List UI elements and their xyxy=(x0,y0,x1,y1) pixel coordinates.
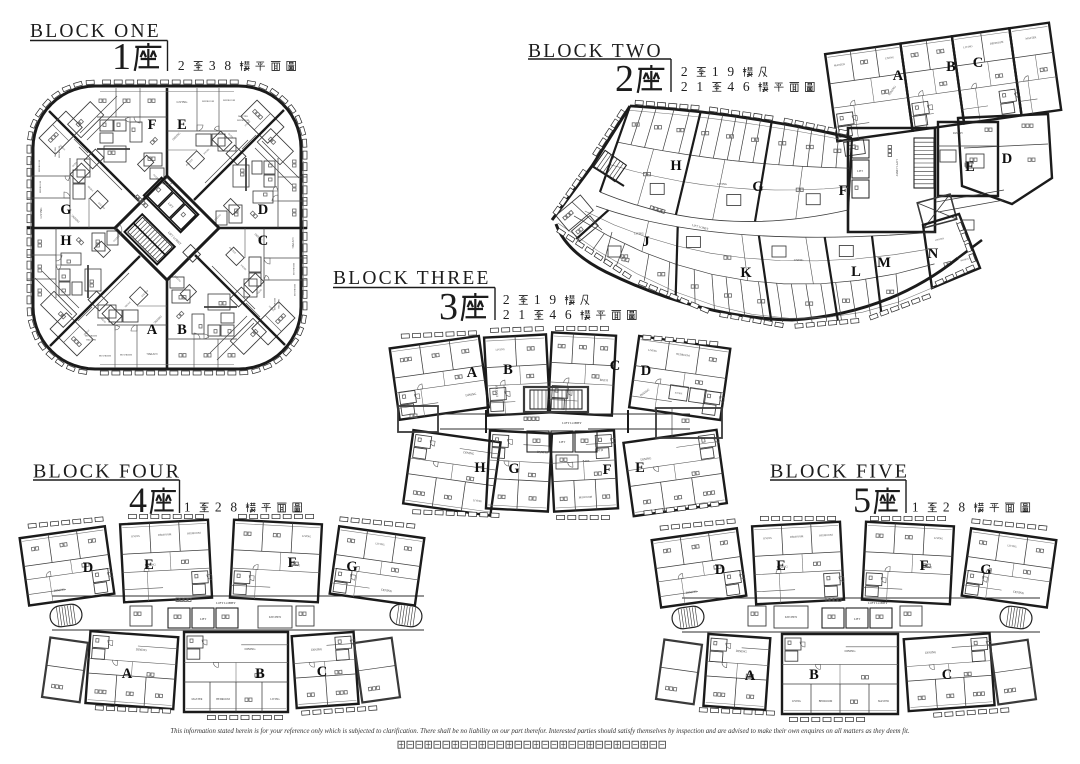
svg-text:BLOCK FOUR: BLOCK FOUR xyxy=(33,461,181,483)
svg-text:MASTER: MASTER xyxy=(86,338,96,341)
svg-text:BEDROOM: BEDROOM xyxy=(119,353,132,356)
svg-text:PANTRY: PANTRY xyxy=(495,384,500,397)
svg-text:A: A xyxy=(893,68,904,84)
svg-text:3: 3 xyxy=(439,286,458,328)
svg-text:BEDROOM: BEDROOM xyxy=(216,698,230,701)
svg-text:LIFT LOBBY: LIFT LOBBY xyxy=(562,421,582,425)
svg-text:BEDROOM: BEDROOM xyxy=(202,100,215,103)
svg-text:BATH: BATH xyxy=(583,460,590,463)
svg-text:G: G xyxy=(60,202,71,218)
svg-text:BEDROOM: BEDROOM xyxy=(293,284,296,297)
svg-text:BEDROOM: BEDROOM xyxy=(819,700,833,703)
svg-text:LIVING: LIVING xyxy=(1007,544,1017,548)
svg-text:LIVING: LIVING xyxy=(717,183,727,186)
svg-text:LIVING: LIVING xyxy=(131,535,140,538)
svg-text:4: 4 xyxy=(129,480,147,520)
svg-text:D: D xyxy=(641,363,651,379)
svg-text:B: B xyxy=(177,322,187,338)
svg-text:8: 8 xyxy=(224,58,231,73)
svg-text:LIFT: LIFT xyxy=(167,202,174,209)
svg-text:MASTER: MASTER xyxy=(238,115,248,118)
svg-text:MASTER: MASTER xyxy=(878,700,889,703)
svg-text:3: 3 xyxy=(209,58,216,73)
svg-text:DINING: DINING xyxy=(245,647,257,651)
svg-text:LIVING: LIVING xyxy=(146,352,158,356)
svg-text:F: F xyxy=(148,117,157,133)
svg-text:C: C xyxy=(973,55,983,71)
svg-text:BLOCK FIVE: BLOCK FIVE xyxy=(770,461,909,483)
svg-text:D: D xyxy=(83,560,93,576)
svg-text:L: L xyxy=(851,264,861,280)
svg-text:DINING: DINING xyxy=(736,649,748,654)
svg-text:A: A xyxy=(122,666,133,682)
svg-text:4: 4 xyxy=(549,307,556,322)
svg-text:LIVING: LIVING xyxy=(792,700,801,703)
svg-text:DINING: DINING xyxy=(845,649,857,653)
svg-text:F: F xyxy=(920,558,929,574)
svg-text:B: B xyxy=(503,362,513,378)
svg-text:LIFT: LIFT xyxy=(854,617,861,621)
svg-text:1: 1 xyxy=(912,500,919,515)
svg-text:E: E xyxy=(635,460,645,476)
svg-text:LIVING: LIVING xyxy=(270,698,279,701)
svg-text:2: 2 xyxy=(681,79,688,94)
svg-text:G: G xyxy=(346,559,357,575)
svg-text:LIVING: LIVING xyxy=(473,499,483,503)
svg-text:PANTRY: PANTRY xyxy=(113,234,121,242)
svg-text:LIFT: LIFT xyxy=(200,617,207,621)
svg-text:B: B xyxy=(809,667,819,683)
svg-text:4: 4 xyxy=(727,79,734,94)
svg-text:LIVING: LIVING xyxy=(302,535,311,538)
svg-text:BEDROOM: BEDROOM xyxy=(39,180,42,193)
svg-text:J: J xyxy=(642,234,649,250)
svg-text:LIVING: LIVING xyxy=(496,348,505,351)
svg-text:9: 9 xyxy=(549,292,556,307)
svg-text:DINING: DINING xyxy=(136,647,148,652)
svg-text:PANTRY: PANTRY xyxy=(213,213,221,221)
svg-text:B: B xyxy=(946,59,956,75)
svg-text:DINING: DINING xyxy=(54,587,66,593)
svg-text:LIVING: LIVING xyxy=(934,537,943,540)
svg-text:BEDROOM: BEDROOM xyxy=(790,535,804,539)
svg-text:MASTER: MASTER xyxy=(277,299,280,309)
svg-text:G: G xyxy=(508,461,519,477)
svg-text:E: E xyxy=(776,558,786,574)
svg-text:H: H xyxy=(474,460,486,476)
svg-text:B: B xyxy=(255,666,265,682)
svg-text:BEDROOM: BEDROOM xyxy=(187,532,201,536)
svg-text:BEDROOM: BEDROOM xyxy=(579,496,593,500)
svg-text:BEDROOM: BEDROOM xyxy=(990,41,1004,46)
svg-text:A: A xyxy=(467,365,478,381)
svg-text:DINING: DINING xyxy=(1013,590,1025,596)
svg-text:A: A xyxy=(147,322,158,338)
svg-text:D: D xyxy=(258,202,268,218)
svg-text:2: 2 xyxy=(503,292,510,307)
svg-text:C: C xyxy=(610,358,620,374)
svg-text:2: 2 xyxy=(503,307,510,322)
svg-text:8: 8 xyxy=(958,500,965,515)
svg-text:MASTER: MASTER xyxy=(192,698,203,701)
svg-text:STORE: STORE xyxy=(204,148,211,155)
svg-text:LIFT LOBBY: LIFT LOBBY xyxy=(868,601,888,605)
svg-text:A: A xyxy=(745,668,756,684)
svg-text:8: 8 xyxy=(230,500,237,515)
svg-text:STORE: STORE xyxy=(675,391,683,395)
svg-text:MASTER: MASTER xyxy=(54,147,57,157)
svg-text:1: 1 xyxy=(112,36,131,78)
svg-text:H: H xyxy=(670,158,682,174)
svg-text:DINING: DINING xyxy=(381,588,393,594)
svg-text:LIFT LOBBY: LIFT LOBBY xyxy=(895,159,899,177)
svg-text:DINING: DINING xyxy=(925,650,937,655)
svg-text:This information stated herein: This information stated herein is for yo… xyxy=(170,728,910,735)
svg-text:C: C xyxy=(258,233,268,249)
svg-text:STORE: STORE xyxy=(123,301,130,308)
svg-text:2: 2 xyxy=(615,58,634,100)
svg-text:DINING: DINING xyxy=(70,214,80,224)
svg-text:C: C xyxy=(317,664,327,680)
svg-text:LIVING: LIVING xyxy=(763,537,772,540)
svg-text:D: D xyxy=(1002,151,1012,167)
svg-text:F: F xyxy=(288,555,297,571)
svg-text:2: 2 xyxy=(178,58,185,73)
svg-text:STORE: STORE xyxy=(240,265,247,272)
svg-text:1: 1 xyxy=(518,307,525,322)
svg-text:LIVING: LIVING xyxy=(375,542,385,546)
svg-text:KITCHEN: KITCHEN xyxy=(269,616,281,619)
svg-text:E: E xyxy=(177,117,187,133)
svg-text:DINING: DINING xyxy=(639,387,651,397)
svg-text:LIFT: LIFT xyxy=(559,440,566,444)
svg-text:C: C xyxy=(942,667,952,683)
svg-text:BEDROOM: BEDROOM xyxy=(819,534,833,538)
svg-text:LIFT LOBBY: LIFT LOBBY xyxy=(216,601,236,605)
svg-text:1: 1 xyxy=(184,500,191,515)
svg-text:2: 2 xyxy=(215,500,222,515)
svg-text:LIVING: LIVING xyxy=(648,349,658,353)
svg-text:2: 2 xyxy=(681,64,688,79)
svg-text:LIVING: LIVING xyxy=(794,259,804,262)
svg-text:2: 2 xyxy=(943,500,950,515)
svg-text:G: G xyxy=(752,179,763,195)
svg-text:MASTER: MASTER xyxy=(834,63,845,68)
svg-text:1: 1 xyxy=(534,292,541,307)
svg-text:M: M xyxy=(877,255,891,271)
svg-text:D: D xyxy=(715,562,725,578)
svg-text:DINING: DINING xyxy=(887,84,897,96)
svg-text:1: 1 xyxy=(696,79,703,94)
svg-text:PANTRY: PANTRY xyxy=(953,132,963,135)
svg-text:1: 1 xyxy=(712,64,719,79)
svg-text:BEDROOM: BEDROOM xyxy=(223,99,236,102)
svg-text:N: N xyxy=(928,246,939,262)
svg-text:BLOCK ONE: BLOCK ONE xyxy=(30,21,161,42)
svg-text:MASTER: MASTER xyxy=(1025,36,1036,41)
svg-text:BLOCK THREE: BLOCK THREE xyxy=(333,268,491,289)
svg-text:LIVING: LIVING xyxy=(39,207,43,219)
svg-text:BEDROOM: BEDROOM xyxy=(676,353,690,358)
svg-text:BEDROOM: BEDROOM xyxy=(98,354,111,357)
svg-text:LIFT: LIFT xyxy=(857,170,863,173)
svg-text:LIVING: LIVING xyxy=(885,56,895,60)
svg-text:DINING: DINING xyxy=(311,647,323,652)
svg-text:LIVING: LIVING xyxy=(963,45,973,49)
svg-text:5: 5 xyxy=(853,480,871,520)
svg-text:F: F xyxy=(839,183,848,199)
svg-text:BEDROOM: BEDROOM xyxy=(292,263,295,276)
svg-text:BATH: BATH xyxy=(600,378,609,382)
svg-text:PANTRY: PANTRY xyxy=(173,274,181,282)
svg-text:G: G xyxy=(980,562,991,578)
svg-text:DINING: DINING xyxy=(465,392,477,398)
svg-text:LIVING: LIVING xyxy=(177,100,189,104)
svg-text:9: 9 xyxy=(727,64,734,79)
svg-text:BEDROOM: BEDROOM xyxy=(158,533,172,537)
svg-text:E: E xyxy=(144,557,154,573)
svg-text:6: 6 xyxy=(565,307,572,322)
svg-text:PANTRY: PANTRY xyxy=(935,237,945,242)
svg-text:F: F xyxy=(603,462,612,478)
svg-text:E: E xyxy=(965,159,975,175)
svg-text:LIVING: LIVING xyxy=(291,238,295,250)
svg-text:BEDROOM: BEDROOM xyxy=(38,159,41,172)
svg-text:KITCHEN: KITCHEN xyxy=(785,616,797,619)
svg-text:DINING: DINING xyxy=(686,589,698,595)
svg-text:K: K xyxy=(740,265,752,281)
svg-text:H: H xyxy=(60,233,72,249)
svg-text:DINING: DINING xyxy=(463,450,475,456)
svg-text:STORE: STORE xyxy=(87,184,94,191)
svg-text:6: 6 xyxy=(743,79,750,94)
